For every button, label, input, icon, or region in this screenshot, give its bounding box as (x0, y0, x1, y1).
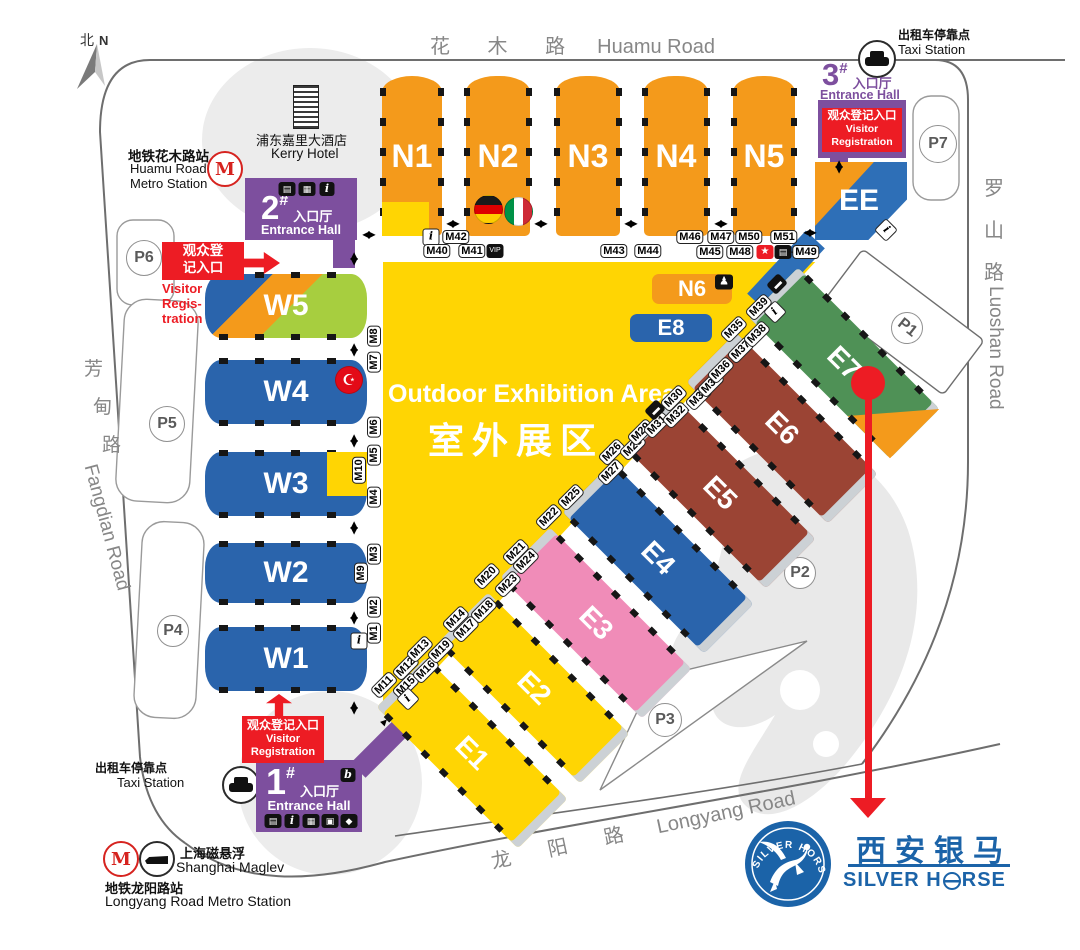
corridor-arrow-icon: ◀▶ (349, 521, 360, 532)
hall-e4-label: E4 (635, 535, 682, 582)
huamu-metro-en1: Huamu Road (130, 161, 207, 176)
entrance3-number: 3 (822, 60, 839, 90)
hall-n5-label: N5 (744, 138, 785, 175)
gift-icon-e1: ▦ (303, 814, 320, 828)
corridor-arrow-icon: ◀▶ (349, 252, 360, 263)
entrance2-title: 2 # 入口厅 (261, 192, 332, 225)
road-luoshan-zh-2: 山 (984, 214, 1004, 243)
book-icon-e2: ▤ (279, 182, 296, 196)
hall-e8: E8 (630, 314, 712, 342)
entrance1-hash: # (286, 765, 295, 783)
hall-n5: N5 (733, 76, 795, 236)
taxi-south-zh: 出租车停靠点 (95, 759, 167, 776)
marker-m47: M47 (707, 230, 734, 244)
entrance1-number: 1 (266, 765, 286, 799)
parking-p6: P6 (126, 240, 162, 276)
marker-m48: M48 (726, 245, 753, 259)
highlight-line (865, 382, 872, 800)
entrance1-title: 1 # 入口厅 (266, 765, 339, 800)
corridor-arrow-icon: ◀▶ (714, 219, 725, 230)
entrance3-hash: # (839, 60, 847, 77)
logo-en-left: SILVER H (843, 869, 942, 892)
road-luoshan-en: Luoshan Road (984, 286, 1006, 410)
corridor-arrow-icon: ◀▶ (362, 230, 373, 241)
logo-en-right: RSE (962, 869, 1006, 892)
hall-w1: W1 (205, 627, 367, 691)
info-icon-m1: i (351, 633, 368, 650)
maglev-train-icon (139, 841, 175, 877)
metro-logo-icon: M (207, 151, 243, 187)
visitor-registration-east: 观众登记入口 Visitor Registration (822, 108, 902, 152)
visitor-registration-south: 观众登记入口 Visitor Registration (242, 716, 324, 763)
marker-m6: M6 (367, 416, 381, 437)
corridor-arrow-icon: ◀▶ (624, 219, 635, 230)
road-fangdian-zh-2: 甸 (93, 392, 112, 419)
marker-m1: M1 (367, 622, 381, 643)
venue-map: 花 木 路Huamu Road 罗 山 路 Luoshan Road 芳 甸 路… (0, 0, 1080, 950)
parking-p5: P5 (149, 406, 185, 442)
reg-west-zh2: 记入口 (183, 260, 224, 275)
kerry-hotel-en: Kerry Hotel (271, 146, 339, 161)
marker-m43: M43 (600, 244, 627, 258)
parking-p5-lot (115, 298, 199, 504)
highlight-arrowhead-icon (850, 798, 886, 818)
hall-w2: W2 (205, 543, 367, 603)
corridor-arrow-icon: ◀▶ (349, 701, 360, 712)
marker-m40: M40 (423, 244, 450, 258)
hall-n6-label: N6 (678, 276, 706, 302)
longyang-metro-en: Longyang Road Metro Station (105, 893, 291, 909)
book-icon-e1: ▤ (265, 814, 282, 828)
hall-e1-label: E1 (449, 730, 496, 777)
hall-w3: W3 (205, 452, 367, 516)
road-luoshan-zh-3: 路 (984, 256, 1004, 285)
hall-n3: N3 (556, 76, 620, 236)
marker-m46: M46 (676, 230, 703, 244)
hall-w5-label: W5 (264, 289, 309, 323)
compass-needle-dark (77, 44, 97, 89)
vip-badge: VIP (487, 244, 504, 258)
n6-service-icon: ♟ (715, 275, 733, 290)
info-icon-e1: i (285, 814, 300, 828)
marker-m5: M5 (367, 444, 381, 465)
hall-n6: N6 ♟ (652, 274, 732, 304)
marker-m42: M42 (442, 230, 469, 244)
marker-m4: M4 (367, 486, 381, 507)
entrance2-en: Entrance Hall (245, 223, 357, 237)
huamu-metro-en2: Metro Station (130, 176, 207, 191)
horse-head (804, 844, 810, 850)
info-icon-m42: i (423, 229, 440, 246)
hall-e8-label: E8 (658, 315, 685, 341)
compass-en: N (99, 33, 108, 48)
hall-n4-label: N4 (656, 138, 697, 175)
marker-m7: M7 (367, 351, 381, 372)
taxi-north-zh: 出租车停靠点 (898, 26, 970, 43)
marker-m45: M45 (696, 245, 723, 259)
silver-horse-badge: SILVER HORSE (744, 820, 832, 908)
hall-n2-label: N2 (478, 138, 519, 175)
road-luoshan-zh-1: 罗 (984, 172, 1004, 201)
corridor-arrow-icon: ◀▶ (803, 228, 814, 239)
hall-e5-label: E5 (697, 470, 744, 517)
hall-w5: W5 (205, 274, 367, 338)
taxi-north-en: Taxi Station (898, 42, 965, 57)
logo-en: SILVER HRSE (843, 869, 1006, 892)
hall-n3-label: N3 (568, 138, 609, 175)
entrance-hall-2: ▤ ▦ i 2 # 入口厅 Entrance Hall (245, 178, 357, 240)
marker-m51: M51 (770, 230, 797, 244)
reg-east-zh: 观众登记入口 (828, 110, 897, 122)
marker-m50: M50 (735, 230, 762, 244)
metro-logo-icon-south: M (103, 841, 139, 877)
marker-m10: M10 (352, 456, 366, 483)
globe-icon (943, 872, 961, 890)
turkey-flag-icon: ☪ (335, 366, 363, 394)
road-huamu-zh: 花 木 路 (430, 36, 581, 58)
taxi-south-en: Taxi Station (117, 775, 184, 790)
reg-south-zh: 观众登记入口 (247, 718, 319, 732)
marker-m8: M8 (367, 325, 381, 346)
entrance-hall-1: 1 # 入口厅 b Entrance Hall ▤ i ▦ ▣ ◆ (256, 760, 362, 832)
hall-e2-label: E2 (511, 665, 558, 712)
corridor-arrow-icon: ◀▶ (349, 434, 360, 445)
marker-m2: M2 (367, 596, 381, 617)
hall-w3-label: W3 (264, 467, 309, 501)
logo-underline (848, 864, 1010, 867)
hall-e3-label: E3 (573, 600, 620, 647)
hall-w1-label: W1 (264, 642, 309, 676)
hall-w4-label: W4 (264, 375, 309, 409)
road-huamu: 花 木 路Huamu Road (430, 30, 715, 59)
hall-n4: N4 (644, 76, 708, 236)
marker-m9: M9 (354, 562, 368, 583)
entrance2-number: 2 (261, 192, 279, 224)
reg-west-zh1: 观众登 (183, 243, 224, 258)
road-huamu-en: Huamu Road (597, 36, 715, 58)
hall-n1: N1 (382, 76, 442, 236)
visitor-registration-west: 观众登 记入口 (162, 242, 244, 280)
maglev-en: Shanghai Maglev (176, 859, 284, 875)
germany-flag-icon (474, 195, 503, 224)
marker-m41: M41 (458, 244, 485, 258)
gate3-arrow-icon: ◀▶ (834, 160, 845, 171)
road-fangdian-zh-3: 路 (102, 430, 121, 457)
hall-e6-label: E6 (759, 405, 806, 452)
compass-zh: 北 (80, 30, 94, 50)
hall-n1-label: N1 (392, 138, 433, 175)
marker-m49: M49 (792, 245, 819, 259)
hall-w2-label: W2 (264, 556, 309, 590)
ticket-icon: ▤ (775, 245, 792, 259)
parking-p3: P3 (648, 703, 682, 737)
star-icon: ★ (757, 245, 774, 259)
parking-p4: P4 (157, 615, 189, 647)
taxi-icon-south (222, 766, 260, 804)
entrance1-en: Entrance Hall (256, 798, 362, 813)
marker-m3: M3 (367, 543, 381, 564)
b-icon-e1: b (341, 768, 356, 782)
italy-flag-icon (504, 197, 533, 226)
road-fangdian-zh-1: 芳 (84, 354, 103, 381)
outdoor-area-label-zh: 室外展区 (428, 412, 604, 464)
hotel-building-icon (293, 85, 319, 129)
boot-icon-e1: ◆ (341, 814, 358, 828)
bag-icon-e2: ▦ (299, 182, 316, 196)
outdoor-area-label-en: Outdoor Exhibition Area (388, 380, 676, 409)
parking-p7: P7 (919, 125, 957, 163)
info-icon-e2: i (320, 182, 335, 196)
camera-icon-e1: ▣ (322, 814, 339, 828)
marker-m44: M44 (634, 244, 661, 258)
corridor-arrow-icon: ◀▶ (349, 343, 360, 354)
hall-ee-label: EE (839, 184, 879, 218)
reg-west-en: Visitor Regis- tration (162, 281, 202, 326)
corridor-arrow-icon: ◀▶ (534, 219, 545, 230)
entrance-hall-3: 观众登记入口 Visitor Registration (818, 100, 906, 158)
corridor-arrow-icon: ◀▶ (349, 611, 360, 622)
corridor-arrow-icon: ◀▶ (446, 219, 457, 230)
